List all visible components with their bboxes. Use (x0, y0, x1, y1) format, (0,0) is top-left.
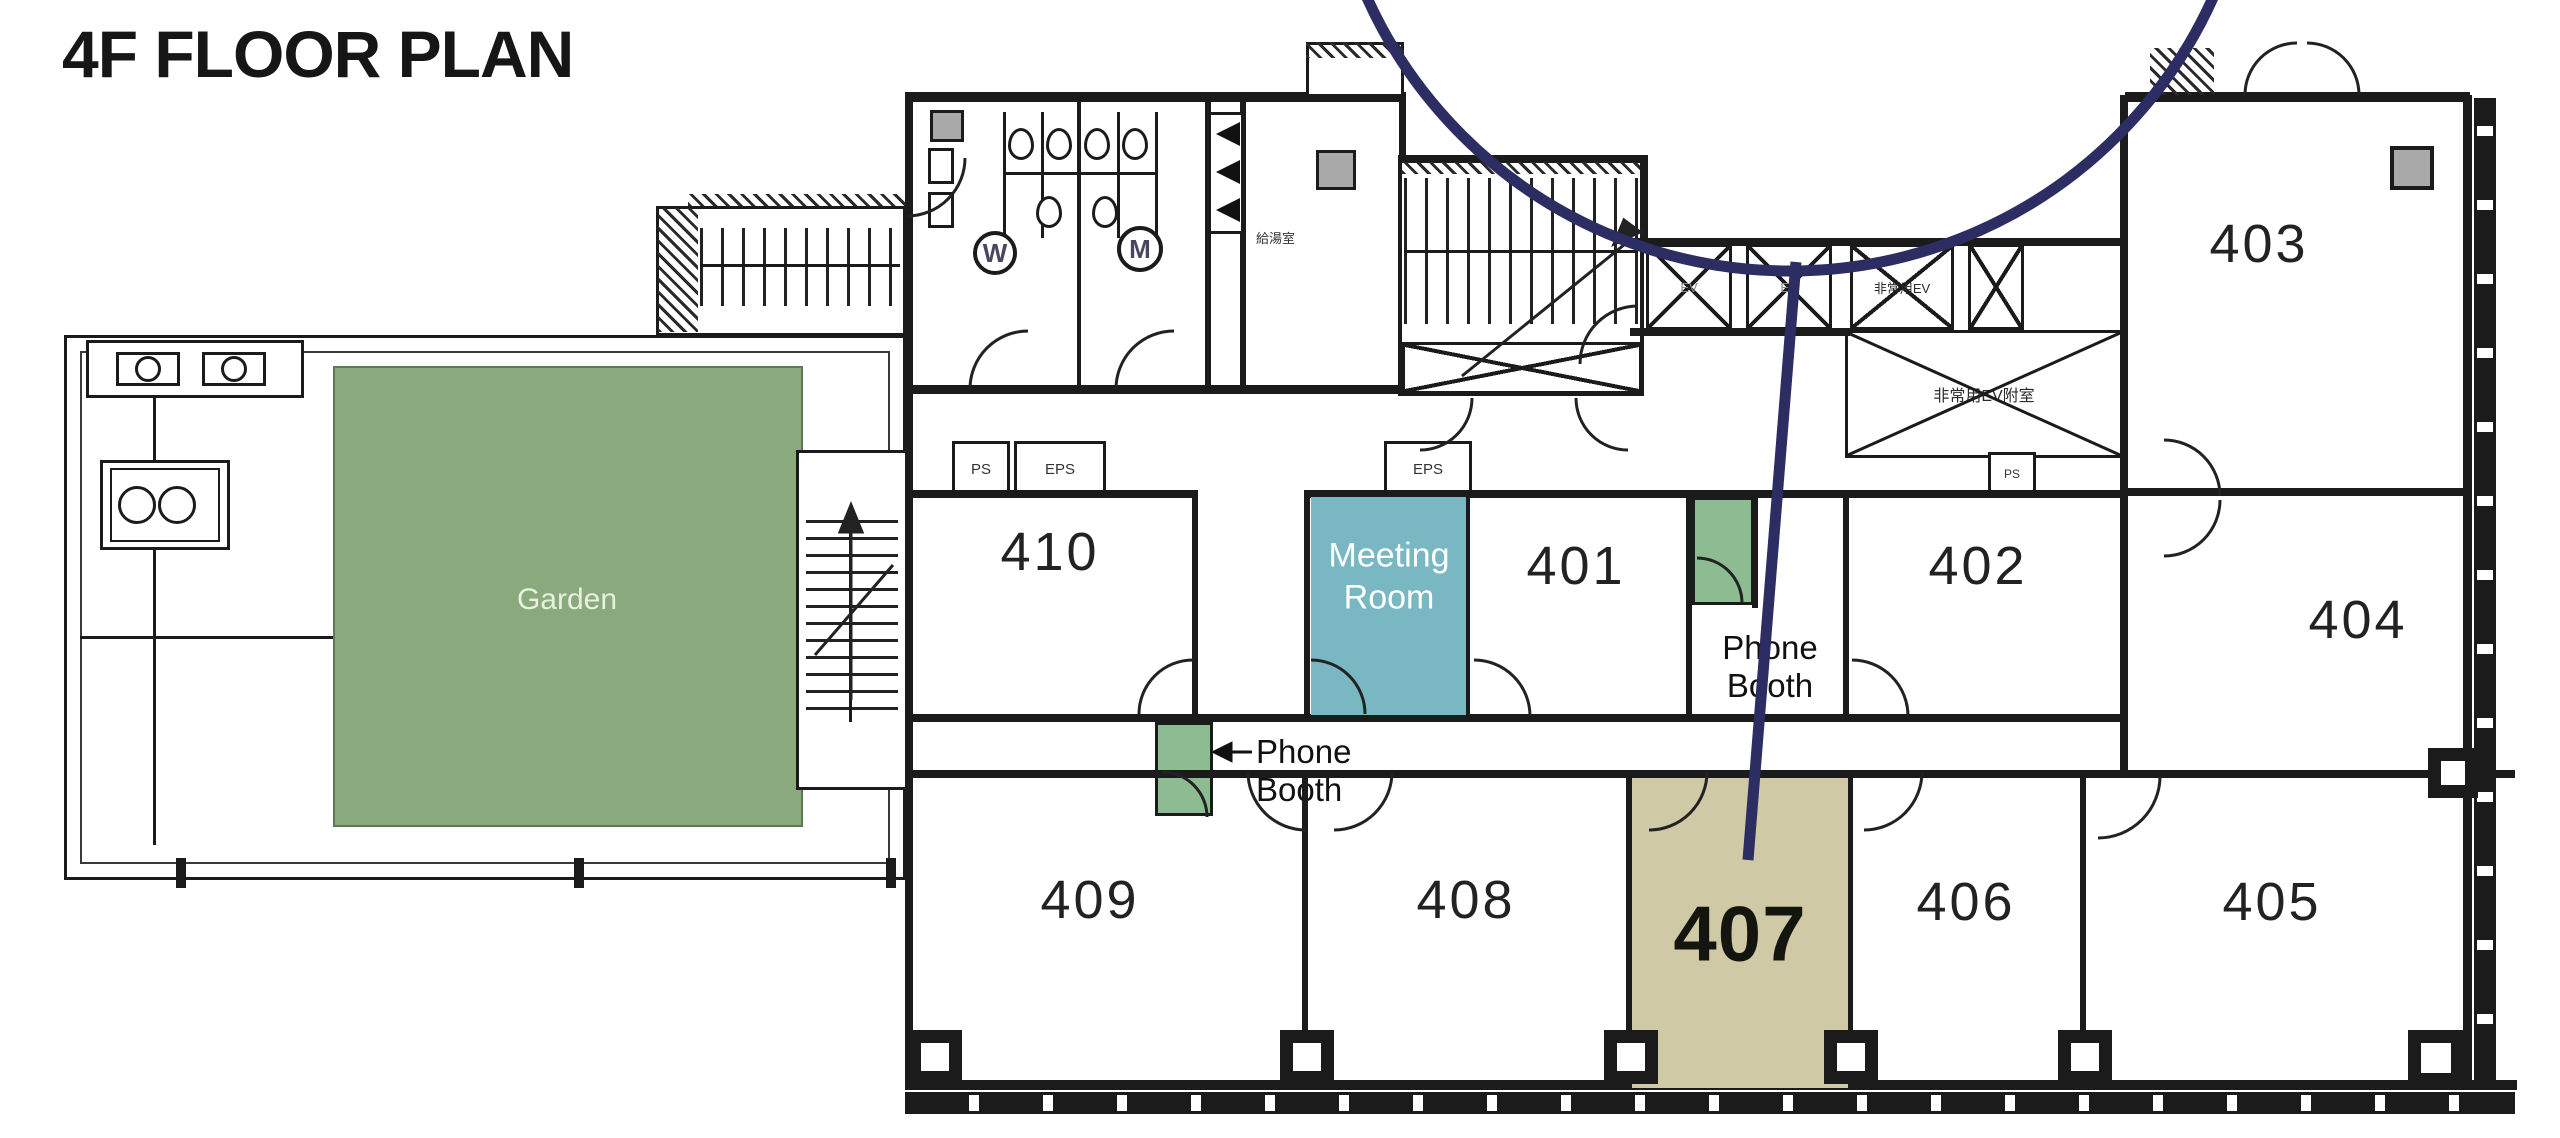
toilet-fixture (1122, 128, 1148, 160)
mens-toilet-symbol: M (1117, 226, 1163, 272)
duct-shaft (930, 110, 964, 142)
wall (1630, 328, 1850, 336)
room-406-label: 406 (1916, 871, 2015, 933)
fixture-circle (221, 356, 247, 382)
ps-closet: PS (952, 441, 1010, 497)
wall (1192, 490, 1198, 722)
elevator-label: EV (1780, 280, 1797, 295)
stall-wall (1117, 112, 1120, 238)
room-401-label: 401 (1526, 535, 1625, 597)
drain-tick (574, 858, 584, 888)
elevator-label: EV (1680, 280, 1697, 295)
ps-label: PS (2004, 467, 2020, 481)
floor-plan: 4F FLOOR PLAN Garden (0, 0, 2560, 1138)
wall (2125, 488, 2470, 496)
wall (905, 770, 2515, 778)
toilet-fixture (1036, 196, 1062, 228)
room-407-label: 407 (1673, 889, 1806, 980)
meeting-room-label-line1: Meeting (1329, 537, 1450, 576)
stair-rail (700, 264, 900, 267)
pillar (1824, 1030, 1878, 1084)
elevator-shaft: EV (1646, 244, 1732, 330)
equipment-fan (158, 486, 196, 524)
stall-wall (1155, 112, 1158, 238)
wall (1399, 92, 1406, 162)
wall (905, 490, 1195, 498)
room-405-label: 405 (2222, 871, 2321, 933)
wall (80, 636, 335, 639)
wall (1304, 490, 1310, 722)
elevator-shaft (1968, 244, 2024, 330)
room-410-label: 410 (1000, 521, 1099, 583)
emergency-elevator-label: 非常用EV (1874, 278, 1930, 297)
drain-tick (176, 858, 186, 888)
stair-rail (1404, 250, 1638, 253)
wall (1843, 490, 1849, 722)
mens-toilet-label: M (1129, 234, 1151, 265)
fixture-circle (135, 356, 161, 382)
stair-treads (806, 520, 898, 710)
wall (905, 385, 1410, 394)
window-band-bottom (905, 1092, 2515, 1114)
womens-toilet-symbol: W (973, 231, 1017, 275)
garden-label: Garden (517, 583, 617, 617)
emergency-ev-lobby-label: 非常用EV附室 (1930, 382, 2037, 406)
phone-booth (1692, 497, 1754, 605)
toilet-fixture (1092, 196, 1118, 228)
phone-booth-label-line1: Phone (1256, 733, 1351, 771)
washbasin (928, 192, 954, 228)
room-404-label: 404 (2308, 589, 2407, 651)
phone-booth (1155, 722, 1213, 816)
eps-closet: EPS (1014, 441, 1106, 497)
toilet-fixture (1084, 128, 1110, 160)
air-duct (1208, 112, 1244, 234)
toilet-fixture (1008, 128, 1034, 160)
page-title: 4F FLOOR PLAN (62, 16, 573, 92)
washbasin (928, 148, 954, 184)
window-band-right (2474, 98, 2496, 1088)
roof-hatch (688, 194, 906, 206)
stall-wall (1003, 172, 1158, 175)
pillar (2058, 1030, 2112, 1084)
toilet-fixture (1046, 128, 1072, 160)
room-408-label: 408 (1416, 869, 1515, 931)
stair-treads (700, 228, 900, 306)
room-402-label: 402 (1928, 535, 2027, 597)
pillar (908, 1030, 962, 1084)
elevator-shaft: EV (1746, 244, 1832, 330)
pillar (1280, 1030, 1334, 1084)
wall (905, 95, 913, 1090)
wall (905, 714, 2128, 722)
eps-label: EPS (1413, 461, 1443, 478)
emergency-elevator-shaft: 非常用EV (1850, 244, 1954, 330)
pillar (2428, 748, 2478, 798)
drain-tick (886, 858, 896, 888)
column-shaft (2390, 146, 2434, 190)
ps-label: PS (971, 461, 991, 478)
womens-toilet-label: W (983, 238, 1008, 269)
eps-label: EPS (1045, 461, 1075, 478)
phone-booth-label-line1: Phone (1722, 629, 1817, 667)
wall (2120, 238, 2128, 772)
equipment-fan (118, 486, 156, 524)
meeting-room-label-line2: Room (1344, 579, 1435, 618)
wall (2463, 95, 2472, 1090)
duct-shaft (1316, 150, 1356, 190)
phone-booth-label-line2: Booth (1727, 667, 1813, 705)
wall (2120, 95, 2128, 246)
pillar (1604, 1030, 1658, 1084)
kitchenette-label: 給湯室 (1256, 228, 1295, 247)
stair-rail (849, 508, 852, 722)
wall (1077, 95, 1081, 387)
stair-hatch (658, 208, 698, 332)
phone-booth-arrow (1212, 742, 1252, 762)
wall (1845, 490, 2128, 498)
room-403-label: 403 (2209, 213, 2308, 275)
stair-hatch (1402, 162, 1640, 174)
stall-wall (1003, 112, 1006, 238)
machine-hatch (2150, 48, 2214, 95)
room-409-label: 409 (1040, 869, 1139, 931)
pillar (2408, 1030, 2464, 1086)
machine-hatch (1306, 42, 1404, 58)
eps-closet: EPS (1384, 441, 1472, 497)
stair-landing (1402, 342, 1642, 394)
